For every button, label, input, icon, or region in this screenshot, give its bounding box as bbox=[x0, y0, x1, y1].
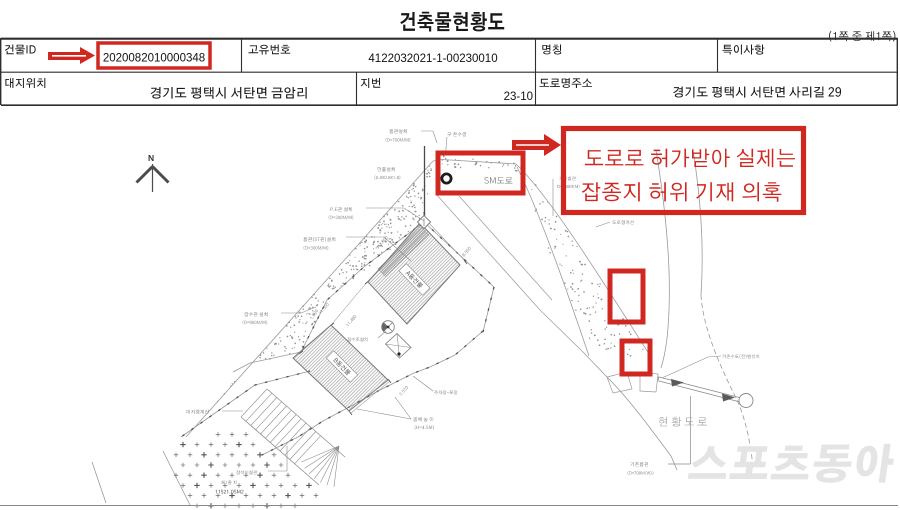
svg-text:4122032021-1-00230010: 4122032021-1-00230010 bbox=[368, 53, 497, 65]
svg-text:2020082010000348: 2020082010000348 bbox=[103, 53, 205, 65]
svg-text:N: N bbox=[148, 153, 154, 163]
svg-text:23-10: 23-10 bbox=[504, 91, 533, 103]
